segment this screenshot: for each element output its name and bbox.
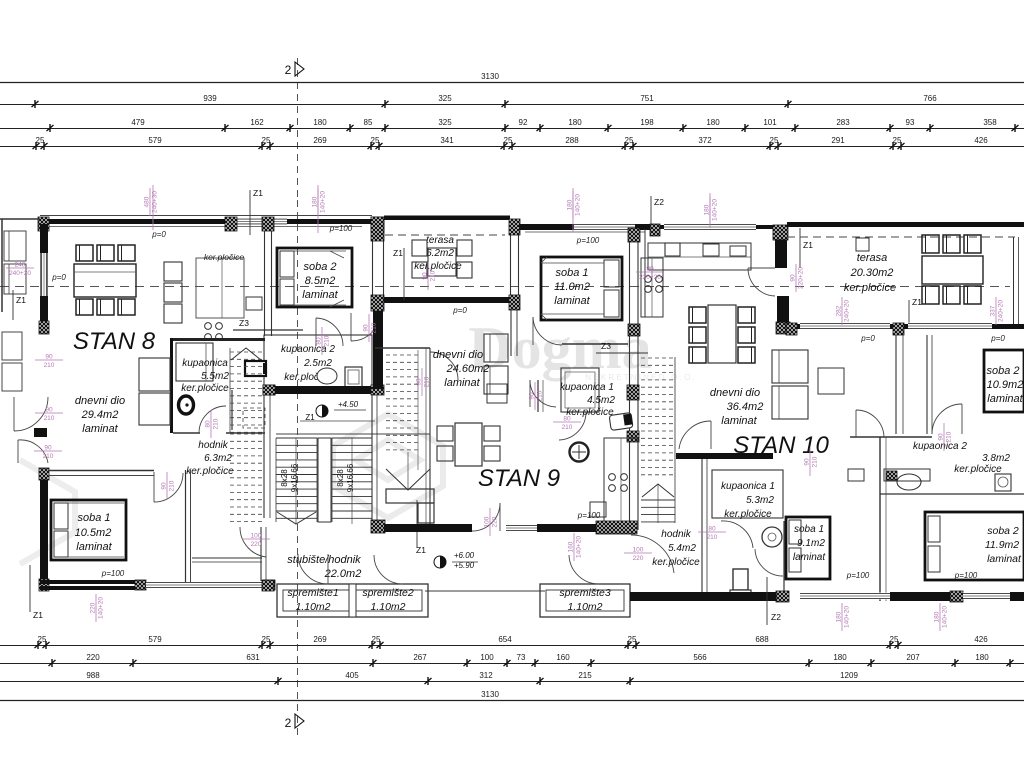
svg-text:5.3m2: 5.3m2 xyxy=(746,495,774,506)
svg-text:Dogma: Dogma xyxy=(468,315,651,381)
svg-text:p=0: p=0 xyxy=(990,334,1005,343)
svg-text:240+20: 240+20 xyxy=(9,270,31,277)
svg-text:Z1: Z1 xyxy=(803,240,813,250)
svg-text:p=100: p=100 xyxy=(101,569,125,578)
svg-text:25: 25 xyxy=(770,136,779,145)
svg-text:220+20: 220+20 xyxy=(798,267,805,289)
svg-text:ker.pločice: ker.pločice xyxy=(186,466,234,477)
svg-text:1209: 1209 xyxy=(840,671,858,680)
svg-text:312: 312 xyxy=(479,671,493,680)
svg-text:90: 90 xyxy=(161,482,168,490)
svg-text:terasa: terasa xyxy=(857,252,888,264)
svg-text:3.8m2: 3.8m2 xyxy=(982,453,1010,464)
svg-text:ker.pločice: ker.pločice xyxy=(724,509,772,520)
svg-text:579: 579 xyxy=(148,136,162,145)
svg-text:480: 480 xyxy=(144,196,151,207)
svg-text:25: 25 xyxy=(625,136,634,145)
svg-text:358: 358 xyxy=(983,118,997,127)
svg-text:210: 210 xyxy=(169,480,176,491)
svg-text:240+20: 240+20 xyxy=(998,300,1005,322)
svg-text:100: 100 xyxy=(484,516,491,527)
svg-text:220: 220 xyxy=(251,541,262,548)
svg-text:80: 80 xyxy=(708,526,716,533)
svg-text:ker.pločice: ker.pločice xyxy=(954,464,1002,475)
svg-text:93: 93 xyxy=(906,118,915,127)
svg-text:laminat: laminat xyxy=(721,415,757,427)
svg-text:6.3m2: 6.3m2 xyxy=(204,453,232,464)
svg-text:24.60m2: 24.60m2 xyxy=(446,363,490,375)
svg-text:751: 751 xyxy=(640,94,654,103)
svg-text:210: 210 xyxy=(213,418,220,429)
svg-text:Z3: Z3 xyxy=(239,318,249,328)
svg-text:140+20: 140+20 xyxy=(320,191,327,213)
svg-text:180: 180 xyxy=(567,199,574,210)
svg-text:220: 220 xyxy=(492,516,499,527)
svg-text:210: 210 xyxy=(562,424,573,431)
svg-text:STAN 8: STAN 8 xyxy=(73,328,156,355)
svg-text:210: 210 xyxy=(707,534,718,541)
svg-text:688: 688 xyxy=(755,635,769,644)
svg-text:4.5m2: 4.5m2 xyxy=(587,395,615,406)
svg-text:90: 90 xyxy=(529,392,536,400)
svg-text:p=0: p=0 xyxy=(452,306,467,315)
svg-text:STAN 9: STAN 9 xyxy=(478,465,560,492)
svg-text:laminat: laminat xyxy=(76,541,112,553)
svg-text:Z1: Z1 xyxy=(305,413,315,422)
svg-text:soba 1: soba 1 xyxy=(77,512,110,524)
svg-text:90: 90 xyxy=(363,324,370,332)
svg-text:566: 566 xyxy=(693,653,707,662)
svg-text:laminat: laminat xyxy=(793,552,826,563)
svg-text:p=100: p=100 xyxy=(329,224,353,233)
svg-text:11.0m2: 11.0m2 xyxy=(554,281,590,293)
svg-text:210: 210 xyxy=(324,335,331,346)
svg-text:654: 654 xyxy=(498,635,512,644)
svg-text:p=0: p=0 xyxy=(151,230,166,239)
svg-text:220: 220 xyxy=(90,602,97,613)
svg-text:282: 282 xyxy=(836,305,843,316)
svg-text:25: 25 xyxy=(38,635,47,644)
svg-text:90: 90 xyxy=(646,266,654,273)
svg-text:p=100: p=100 xyxy=(954,571,978,580)
svg-text:Z1: Z1 xyxy=(16,295,26,305)
svg-text:220+20: 220+20 xyxy=(639,274,661,281)
svg-text:ker.pločice: ker.pločice xyxy=(204,252,245,262)
svg-text:25: 25 xyxy=(890,635,899,644)
svg-text:73: 73 xyxy=(517,653,526,662)
svg-text:terasa: terasa xyxy=(426,235,454,246)
svg-text:25: 25 xyxy=(893,136,902,145)
svg-text:soba 1: soba 1 xyxy=(794,524,824,535)
svg-text:90: 90 xyxy=(416,378,423,386)
svg-text:kupaonica 2: kupaonica 2 xyxy=(913,441,967,452)
svg-text:laminat: laminat xyxy=(554,295,590,307)
svg-text:1.10m2: 1.10m2 xyxy=(295,601,330,613)
svg-text:36.4m2: 36.4m2 xyxy=(727,401,764,413)
svg-text:Z2: Z2 xyxy=(771,612,781,622)
svg-text:100: 100 xyxy=(480,653,494,662)
svg-text:210: 210 xyxy=(946,431,953,442)
svg-text:372: 372 xyxy=(698,136,712,145)
svg-text:90: 90 xyxy=(45,354,53,361)
svg-text:3130: 3130 xyxy=(481,72,499,81)
svg-text:210: 210 xyxy=(44,362,55,369)
svg-text:9x16.66: 9x16.66 xyxy=(290,463,299,492)
svg-text:25: 25 xyxy=(371,136,380,145)
svg-text:soba 2: soba 2 xyxy=(987,525,1019,537)
svg-text:3130: 3130 xyxy=(481,690,499,699)
svg-text:5.5m2: 5.5m2 xyxy=(201,371,229,382)
svg-text:kupaonica: kupaonica xyxy=(182,358,228,369)
svg-text:p=0: p=0 xyxy=(860,334,875,343)
svg-text:341: 341 xyxy=(440,136,454,145)
svg-text:479: 479 xyxy=(131,118,145,127)
svg-text:laminat: laminat xyxy=(987,393,1023,405)
svg-text:90: 90 xyxy=(45,407,53,414)
svg-text:939: 939 xyxy=(203,94,217,103)
svg-text:140+20: 140+20 xyxy=(712,199,719,221)
svg-text:210: 210 xyxy=(424,376,431,387)
svg-text:210: 210 xyxy=(812,456,819,467)
svg-text:hodnik: hodnik xyxy=(661,529,691,540)
svg-text:180: 180 xyxy=(975,653,989,662)
svg-text:337: 337 xyxy=(990,305,997,316)
svg-text:8.5m2: 8.5m2 xyxy=(305,275,336,287)
svg-text:2: 2 xyxy=(285,63,292,77)
svg-text:soba 1: soba 1 xyxy=(555,267,588,279)
svg-text:198: 198 xyxy=(640,118,654,127)
svg-text:dnevni dio: dnevni dio xyxy=(75,395,125,407)
svg-text:Z1: Z1 xyxy=(393,248,403,258)
svg-text:80: 80 xyxy=(205,420,212,428)
svg-text:210: 210 xyxy=(371,322,378,333)
svg-text:soba 2: soba 2 xyxy=(303,261,336,273)
svg-text:180: 180 xyxy=(568,118,582,127)
svg-text:1.10m2: 1.10m2 xyxy=(567,601,602,613)
svg-text:220: 220 xyxy=(633,555,644,562)
svg-text:ker.pločice: ker.pločice xyxy=(414,261,462,272)
svg-text:180: 180 xyxy=(312,196,319,207)
svg-text:180: 180 xyxy=(313,118,327,127)
svg-text:140+20: 140+20 xyxy=(844,606,851,628)
svg-text:25: 25 xyxy=(36,136,45,145)
svg-text:180: 180 xyxy=(833,653,847,662)
svg-text:100: 100 xyxy=(633,547,644,554)
svg-text:579: 579 xyxy=(148,635,162,644)
svg-text:80: 80 xyxy=(316,337,323,345)
svg-text:Z1: Z1 xyxy=(416,545,426,555)
svg-text:25: 25 xyxy=(504,136,513,145)
svg-text:5.4m2: 5.4m2 xyxy=(668,543,696,554)
svg-text:ker.pločice: ker.pločice xyxy=(652,557,700,568)
svg-text:180: 180 xyxy=(934,611,941,622)
svg-text:220: 220 xyxy=(86,653,100,662)
svg-text:101: 101 xyxy=(763,118,777,127)
svg-text:p=100: p=100 xyxy=(577,511,601,520)
svg-text:p=100: p=100 xyxy=(576,236,600,245)
svg-text:90: 90 xyxy=(790,274,797,282)
svg-text:8x28: 8x28 xyxy=(336,469,345,487)
svg-text:180: 180 xyxy=(706,118,720,127)
svg-text:p=100: p=100 xyxy=(846,571,870,580)
svg-text:laminat: laminat xyxy=(302,289,338,301)
svg-text:140+20: 140+20 xyxy=(98,597,105,619)
svg-text:140+20: 140+20 xyxy=(942,606,949,628)
svg-text:140+20: 140+20 xyxy=(576,536,583,558)
svg-text:291: 291 xyxy=(831,136,845,145)
svg-text:Z1: Z1 xyxy=(253,188,263,198)
svg-text:180: 180 xyxy=(704,204,711,215)
svg-text:Z1: Z1 xyxy=(912,297,922,307)
svg-text:988: 988 xyxy=(86,671,100,680)
svg-text:405: 405 xyxy=(345,671,359,680)
svg-text:25: 25 xyxy=(628,635,637,644)
svg-text:210: 210 xyxy=(43,453,54,460)
svg-text:Z1: Z1 xyxy=(33,610,43,620)
svg-text:248: 248 xyxy=(15,262,26,269)
svg-text:dnevni dio: dnevni dio xyxy=(710,387,760,399)
svg-text:90: 90 xyxy=(938,433,945,441)
svg-text:140+20: 140+20 xyxy=(575,194,582,216)
svg-text:ker.pločice: ker.pločice xyxy=(181,383,229,394)
svg-text:kupaonica 1: kupaonica 1 xyxy=(721,481,775,492)
svg-text:kupaonica 1: kupaonica 1 xyxy=(560,382,614,393)
svg-text:240+20: 240+20 xyxy=(844,300,851,322)
svg-text:269: 269 xyxy=(313,136,327,145)
svg-text:288: 288 xyxy=(565,136,579,145)
svg-text:210: 210 xyxy=(537,390,544,401)
svg-text:laminat: laminat xyxy=(82,423,118,435)
svg-text:ker.pločice: ker.pločice xyxy=(566,407,614,418)
svg-text:hodnik: hodnik xyxy=(198,440,228,451)
svg-text:8x28: 8x28 xyxy=(280,469,289,487)
svg-text:25: 25 xyxy=(262,136,271,145)
svg-text:ker.pločice: ker.pločice xyxy=(844,282,896,294)
svg-text:p=0: p=0 xyxy=(51,273,66,282)
svg-text:spremište3: spremište3 xyxy=(559,587,611,599)
svg-text:6.2m2: 6.2m2 xyxy=(426,248,454,259)
svg-text:29.4m2: 29.4m2 xyxy=(81,409,119,421)
svg-text:spremište2: spremište2 xyxy=(362,587,414,599)
svg-text:269: 269 xyxy=(313,635,327,644)
svg-text:766: 766 xyxy=(923,94,937,103)
svg-text:210: 210 xyxy=(430,270,437,281)
svg-text:dnevni dio: dnevni dio xyxy=(433,349,483,361)
svg-text:spremište1: spremište1 xyxy=(287,587,338,599)
svg-text:10.5m2: 10.5m2 xyxy=(75,527,112,539)
svg-text:11.9m2: 11.9m2 xyxy=(985,539,1019,551)
svg-text:90: 90 xyxy=(422,272,429,280)
svg-text:+6.00: +6.00 xyxy=(454,551,475,560)
svg-text:162: 162 xyxy=(250,118,264,127)
svg-text:240+30: 240+30 xyxy=(152,191,159,213)
svg-text:9x16.66: 9x16.66 xyxy=(346,463,355,492)
svg-text:85: 85 xyxy=(364,118,373,127)
svg-text:laminat: laminat xyxy=(987,553,1022,565)
svg-text:426: 426 xyxy=(974,635,988,644)
svg-text:10.9m2: 10.9m2 xyxy=(987,379,1024,391)
svg-text:210: 210 xyxy=(44,415,55,422)
svg-text:631: 631 xyxy=(246,653,260,662)
svg-text:283: 283 xyxy=(836,118,850,127)
svg-text:22.0m2: 22.0m2 xyxy=(324,568,362,580)
svg-text:325: 325 xyxy=(438,94,452,103)
svg-text:92: 92 xyxy=(519,118,528,127)
svg-text:N E K R E T N I N E D . O .: N E K R E T N I N E D . O . O . xyxy=(585,373,695,382)
svg-text:soba 2: soba 2 xyxy=(986,365,1019,377)
svg-text:207: 207 xyxy=(906,653,920,662)
svg-text:20.30m2: 20.30m2 xyxy=(850,267,894,279)
svg-text:laminat: laminat xyxy=(444,377,480,389)
svg-text:1.10m2: 1.10m2 xyxy=(370,601,405,613)
svg-text:2: 2 xyxy=(285,716,292,730)
svg-text:25: 25 xyxy=(372,635,381,644)
svg-text:Z2: Z2 xyxy=(654,197,664,207)
svg-text:25: 25 xyxy=(262,635,271,644)
svg-text:90: 90 xyxy=(804,458,811,466)
svg-text:426: 426 xyxy=(974,136,988,145)
svg-text:90: 90 xyxy=(44,445,52,452)
svg-text:2.5m2: 2.5m2 xyxy=(303,358,332,369)
svg-text:100: 100 xyxy=(251,533,262,540)
svg-text:Z3: Z3 xyxy=(601,341,611,351)
svg-text:267: 267 xyxy=(413,653,427,662)
svg-text:80: 80 xyxy=(563,416,571,423)
svg-text:160: 160 xyxy=(568,541,575,552)
svg-text:180: 180 xyxy=(836,611,843,622)
svg-text:325: 325 xyxy=(438,118,452,127)
svg-text:+4.50: +4.50 xyxy=(338,400,359,409)
svg-text:160: 160 xyxy=(556,653,570,662)
svg-text:215: 215 xyxy=(578,671,592,680)
